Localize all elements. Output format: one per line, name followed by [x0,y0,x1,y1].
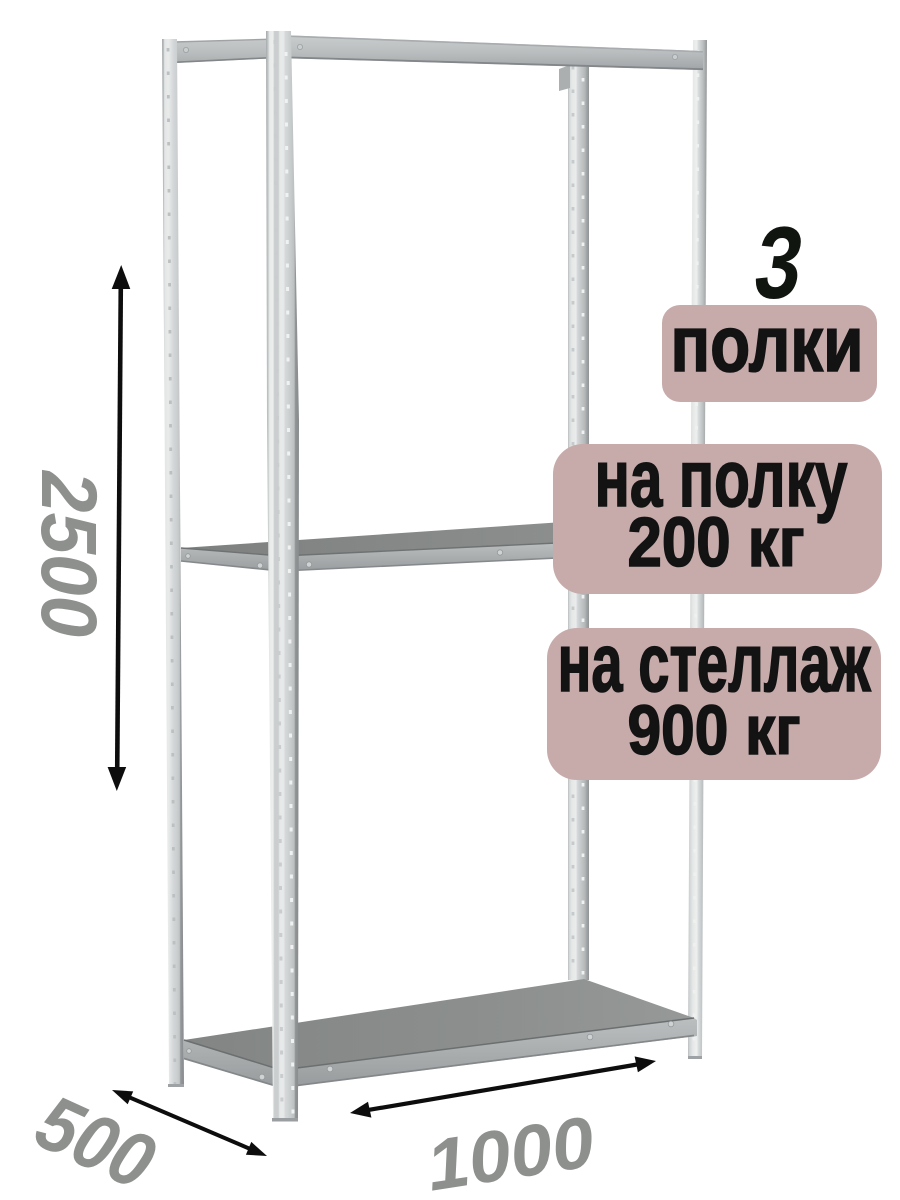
svg-text:2500: 2500 [25,469,114,637]
svg-text:200 кг: 200 кг [628,503,805,581]
svg-text:500: 500 [24,1077,168,1200]
svg-text:полки: полки [671,299,864,388]
svg-text:1000: 1000 [421,1102,599,1200]
svg-text:900 кг: 900 кг [628,691,801,769]
